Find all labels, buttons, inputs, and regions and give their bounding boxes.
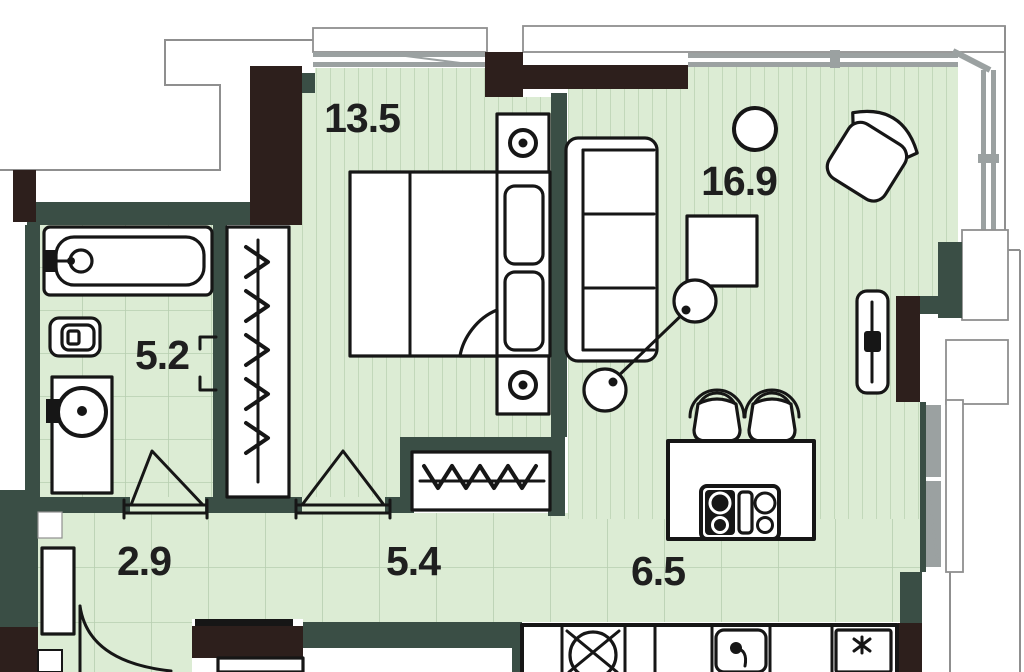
balcony-sill-living xyxy=(523,26,1005,52)
window-frame-step xyxy=(946,340,1008,404)
pillow-icon xyxy=(505,186,543,264)
hallway-area-label: 2.9 xyxy=(117,538,171,584)
pillow-icon xyxy=(505,272,543,350)
tv-panel-icon xyxy=(857,291,888,393)
hood-icon xyxy=(836,630,891,672)
threshold-box xyxy=(38,650,62,672)
kitchen-counter xyxy=(522,625,897,672)
bar-chair-icon xyxy=(745,390,799,441)
coffee-table-icon xyxy=(687,216,757,286)
kitchen-island-icon xyxy=(668,441,814,539)
bar-chair-icon xyxy=(690,390,744,441)
kitchen-sink-icon xyxy=(567,631,619,672)
faucet-icon xyxy=(716,630,766,672)
living-area-label: 16.9 xyxy=(701,158,777,204)
bedroom-area-label: 13.5 xyxy=(324,95,400,141)
kitchen-area-label: 6.5 xyxy=(631,548,685,594)
balcony-sill-bedroom xyxy=(313,28,487,52)
bathroom-area-label: 5.2 xyxy=(135,332,189,378)
wardrobe-corridor xyxy=(412,452,550,510)
wall-niche xyxy=(38,512,62,538)
wardrobe-tall xyxy=(227,227,289,497)
nightstand-lamp-icon xyxy=(497,356,549,414)
corridor-area-label: 5.4 xyxy=(386,538,441,584)
plant-icon xyxy=(734,108,776,150)
toilet-icon xyxy=(50,318,100,356)
floor-plan: 13.5 16.9 5.2 2.9 5.4 6.5 xyxy=(0,0,1024,672)
double-bed-icon xyxy=(350,172,550,356)
washbasin-icon xyxy=(46,377,112,493)
bathtub-icon xyxy=(44,227,212,295)
cooktop-icon xyxy=(701,486,779,539)
window-frame-step xyxy=(962,230,1008,320)
sofa-icon xyxy=(566,138,657,361)
nightstand-lamp-icon xyxy=(497,114,549,172)
